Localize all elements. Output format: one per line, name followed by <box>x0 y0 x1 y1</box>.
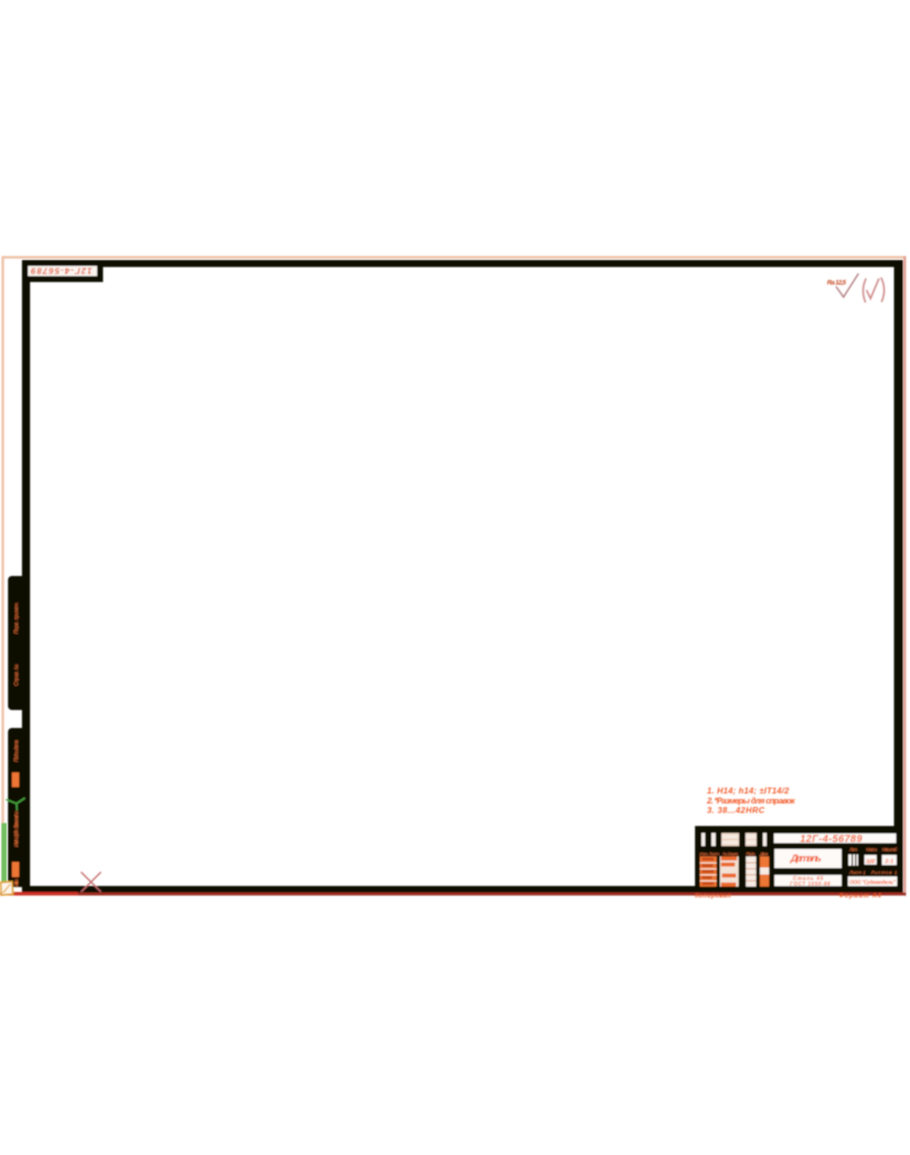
svg-text:Лит.: Лит. <box>849 847 858 852</box>
svg-text:Подп. и дата: Подп. и дата <box>14 740 20 762</box>
svg-text:Масса: Масса <box>866 847 877 852</box>
svg-text:Инв. №: Инв. № <box>14 878 20 886</box>
svg-text:Лист 1: Лист 1 <box>849 870 866 875</box>
svg-text:Изм. Лист: Изм. Лист <box>700 852 720 857</box>
svg-text:12Г-4-56789: 12Г-4-56789 <box>800 834 862 845</box>
svg-text:3,02: 3,02 <box>866 859 875 865</box>
svg-text:Формат А4: Формат А4 <box>839 894 882 900</box>
svg-text:ГОСТ 1050-88: ГОСТ 1050-88 <box>790 882 830 888</box>
svg-text:Деталь: Деталь <box>790 853 822 865</box>
svg-text:Копировал: Копировал <box>695 894 731 900</box>
svg-text:Инв. № дубл.: Инв. № дубл. <box>14 830 20 848</box>
svg-text:Взам. инв. №: Взам. инв. № <box>14 810 20 828</box>
svg-text:Масштаб: Масштаб <box>882 847 897 852</box>
svg-text:Подп.: Подп. <box>746 852 756 857</box>
svg-text:2:1: 2:1 <box>884 859 894 865</box>
svg-text:Листов 1: Листов 1 <box>870 870 897 875</box>
svg-text:Справ. №: Справ. № <box>14 664 20 686</box>
svg-text:Дата: Дата <box>759 852 768 857</box>
svg-text:ООО "Судомодель": ООО "Судомодель" <box>850 880 897 886</box>
svg-text:3. 38...42HRC: 3. 38...42HRC <box>707 805 766 815</box>
svg-text:№ докум.: № докум. <box>723 852 739 857</box>
svg-text:Ra 12,5: Ra 12,5 <box>827 280 846 287</box>
svg-text:1. Н14; h14; ±IT14/2: 1. Н14; h14; ±IT14/2 <box>707 785 789 795</box>
svg-text:12Г-4-56789: 12Г-4-56789 <box>31 266 92 276</box>
svg-text:2. *Размеры для справок: 2. *Размеры для справок <box>706 796 796 806</box>
svg-text:Перв. примен.: Перв. примен. <box>14 602 20 634</box>
